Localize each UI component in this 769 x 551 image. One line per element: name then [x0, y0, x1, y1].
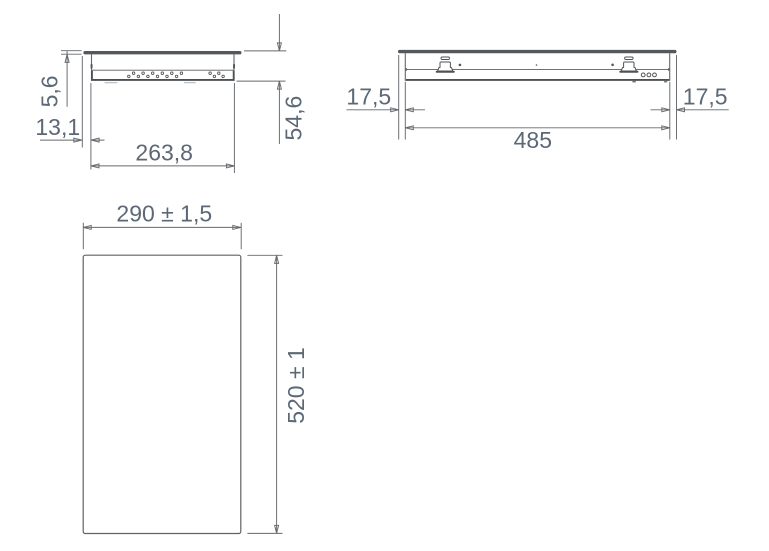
svg-text:54,6: 54,6: [281, 96, 307, 141]
svg-text:485: 485: [514, 127, 552, 153]
svg-text:13,1: 13,1: [35, 114, 80, 140]
svg-text:17,5: 17,5: [346, 84, 391, 110]
svg-text:17,5: 17,5: [683, 84, 728, 110]
svg-text:290 ± 1,5: 290 ± 1,5: [116, 200, 212, 226]
svg-text:520 ± 1: 520 ± 1: [283, 347, 309, 424]
svg-text:5,6: 5,6: [37, 75, 63, 107]
svg-text:263,8: 263,8: [135, 139, 193, 165]
